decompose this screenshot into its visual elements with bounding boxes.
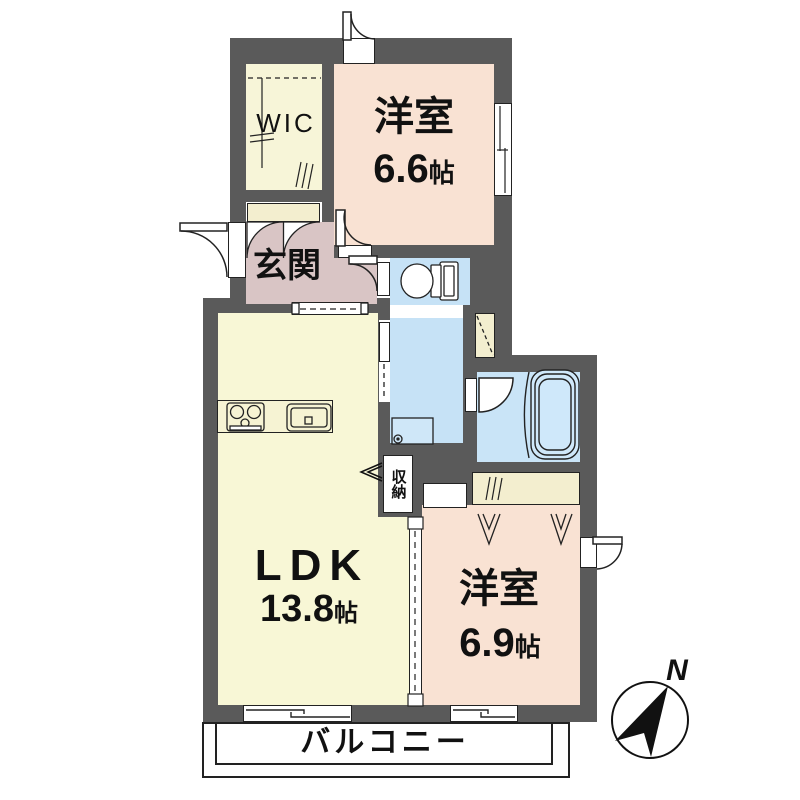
ldk-window (243, 705, 352, 722)
bedroom2-opening (423, 483, 467, 508)
ldk-size: 13.8帖 (260, 590, 358, 628)
ldk-floor-ext (378, 517, 409, 705)
bedroom1-door-gap (338, 245, 372, 258)
wall-right-upper (494, 38, 512, 372)
genkan-hallway-floor (334, 258, 377, 304)
bedroom1-name: 洋室 (374, 97, 454, 137)
bedroom1-top-door-gap (343, 38, 375, 64)
ldk-bedroom2-partition (409, 517, 422, 705)
ldk-entry-door (292, 302, 368, 315)
bedroom2-size: 6.9帖 (459, 623, 541, 663)
toilet-door-gap (377, 262, 390, 296)
bathroom-door-gap (465, 378, 477, 412)
shoe-cabinet (247, 203, 320, 222)
kitchen-counter (217, 400, 333, 433)
ldk-size-value: 13.8 (260, 588, 334, 630)
washroom-door-panel (379, 322, 390, 362)
entrance-door-swing-icon (180, 223, 227, 277)
entrance-door-gap (228, 222, 246, 278)
ldk-floor (218, 313, 378, 705)
bedroom2-window (450, 705, 518, 722)
washroom-floor (390, 318, 463, 443)
bedroom1-window (494, 103, 512, 196)
bedroom2-size-value: 6.9 (459, 621, 515, 665)
bedroom2-name: 洋室 (459, 569, 539, 609)
bathroom-floor (477, 372, 580, 462)
compass-north-label: N (666, 656, 688, 686)
ldk-size-unit: 帖 (334, 600, 358, 627)
floor-plan: WIC 洋室 6.6帖 玄関 LDK 13.8帖 収納 洋室 6.9帖 バルコニ… (0, 0, 800, 800)
wic-label: WIC (256, 110, 316, 136)
storage-label: 収納 (391, 469, 406, 499)
toilet-floor (390, 258, 470, 305)
wall-left-lower (203, 298, 218, 722)
bedroom2-closet (472, 472, 580, 505)
bedroom1-top-door-swing-icon (343, 12, 375, 40)
ldk-name: LDK (255, 544, 369, 588)
bedroom1-size-unit: 帖 (429, 158, 455, 188)
bedroom2-size-unit: 帖 (515, 632, 541, 662)
bedroom2-door-gap (580, 537, 597, 568)
bedroom2-door-swing-icon (593, 537, 622, 569)
balcony-label: バルコニー (300, 728, 469, 758)
bedroom1-size-value: 6.6 (373, 147, 429, 191)
linen-shelf (475, 313, 495, 358)
genkan-label: 玄関 (253, 249, 321, 283)
bedroom1-size: 6.6帖 (373, 149, 455, 189)
compass-icon (612, 682, 688, 758)
wall-wic-bottom (246, 190, 322, 202)
